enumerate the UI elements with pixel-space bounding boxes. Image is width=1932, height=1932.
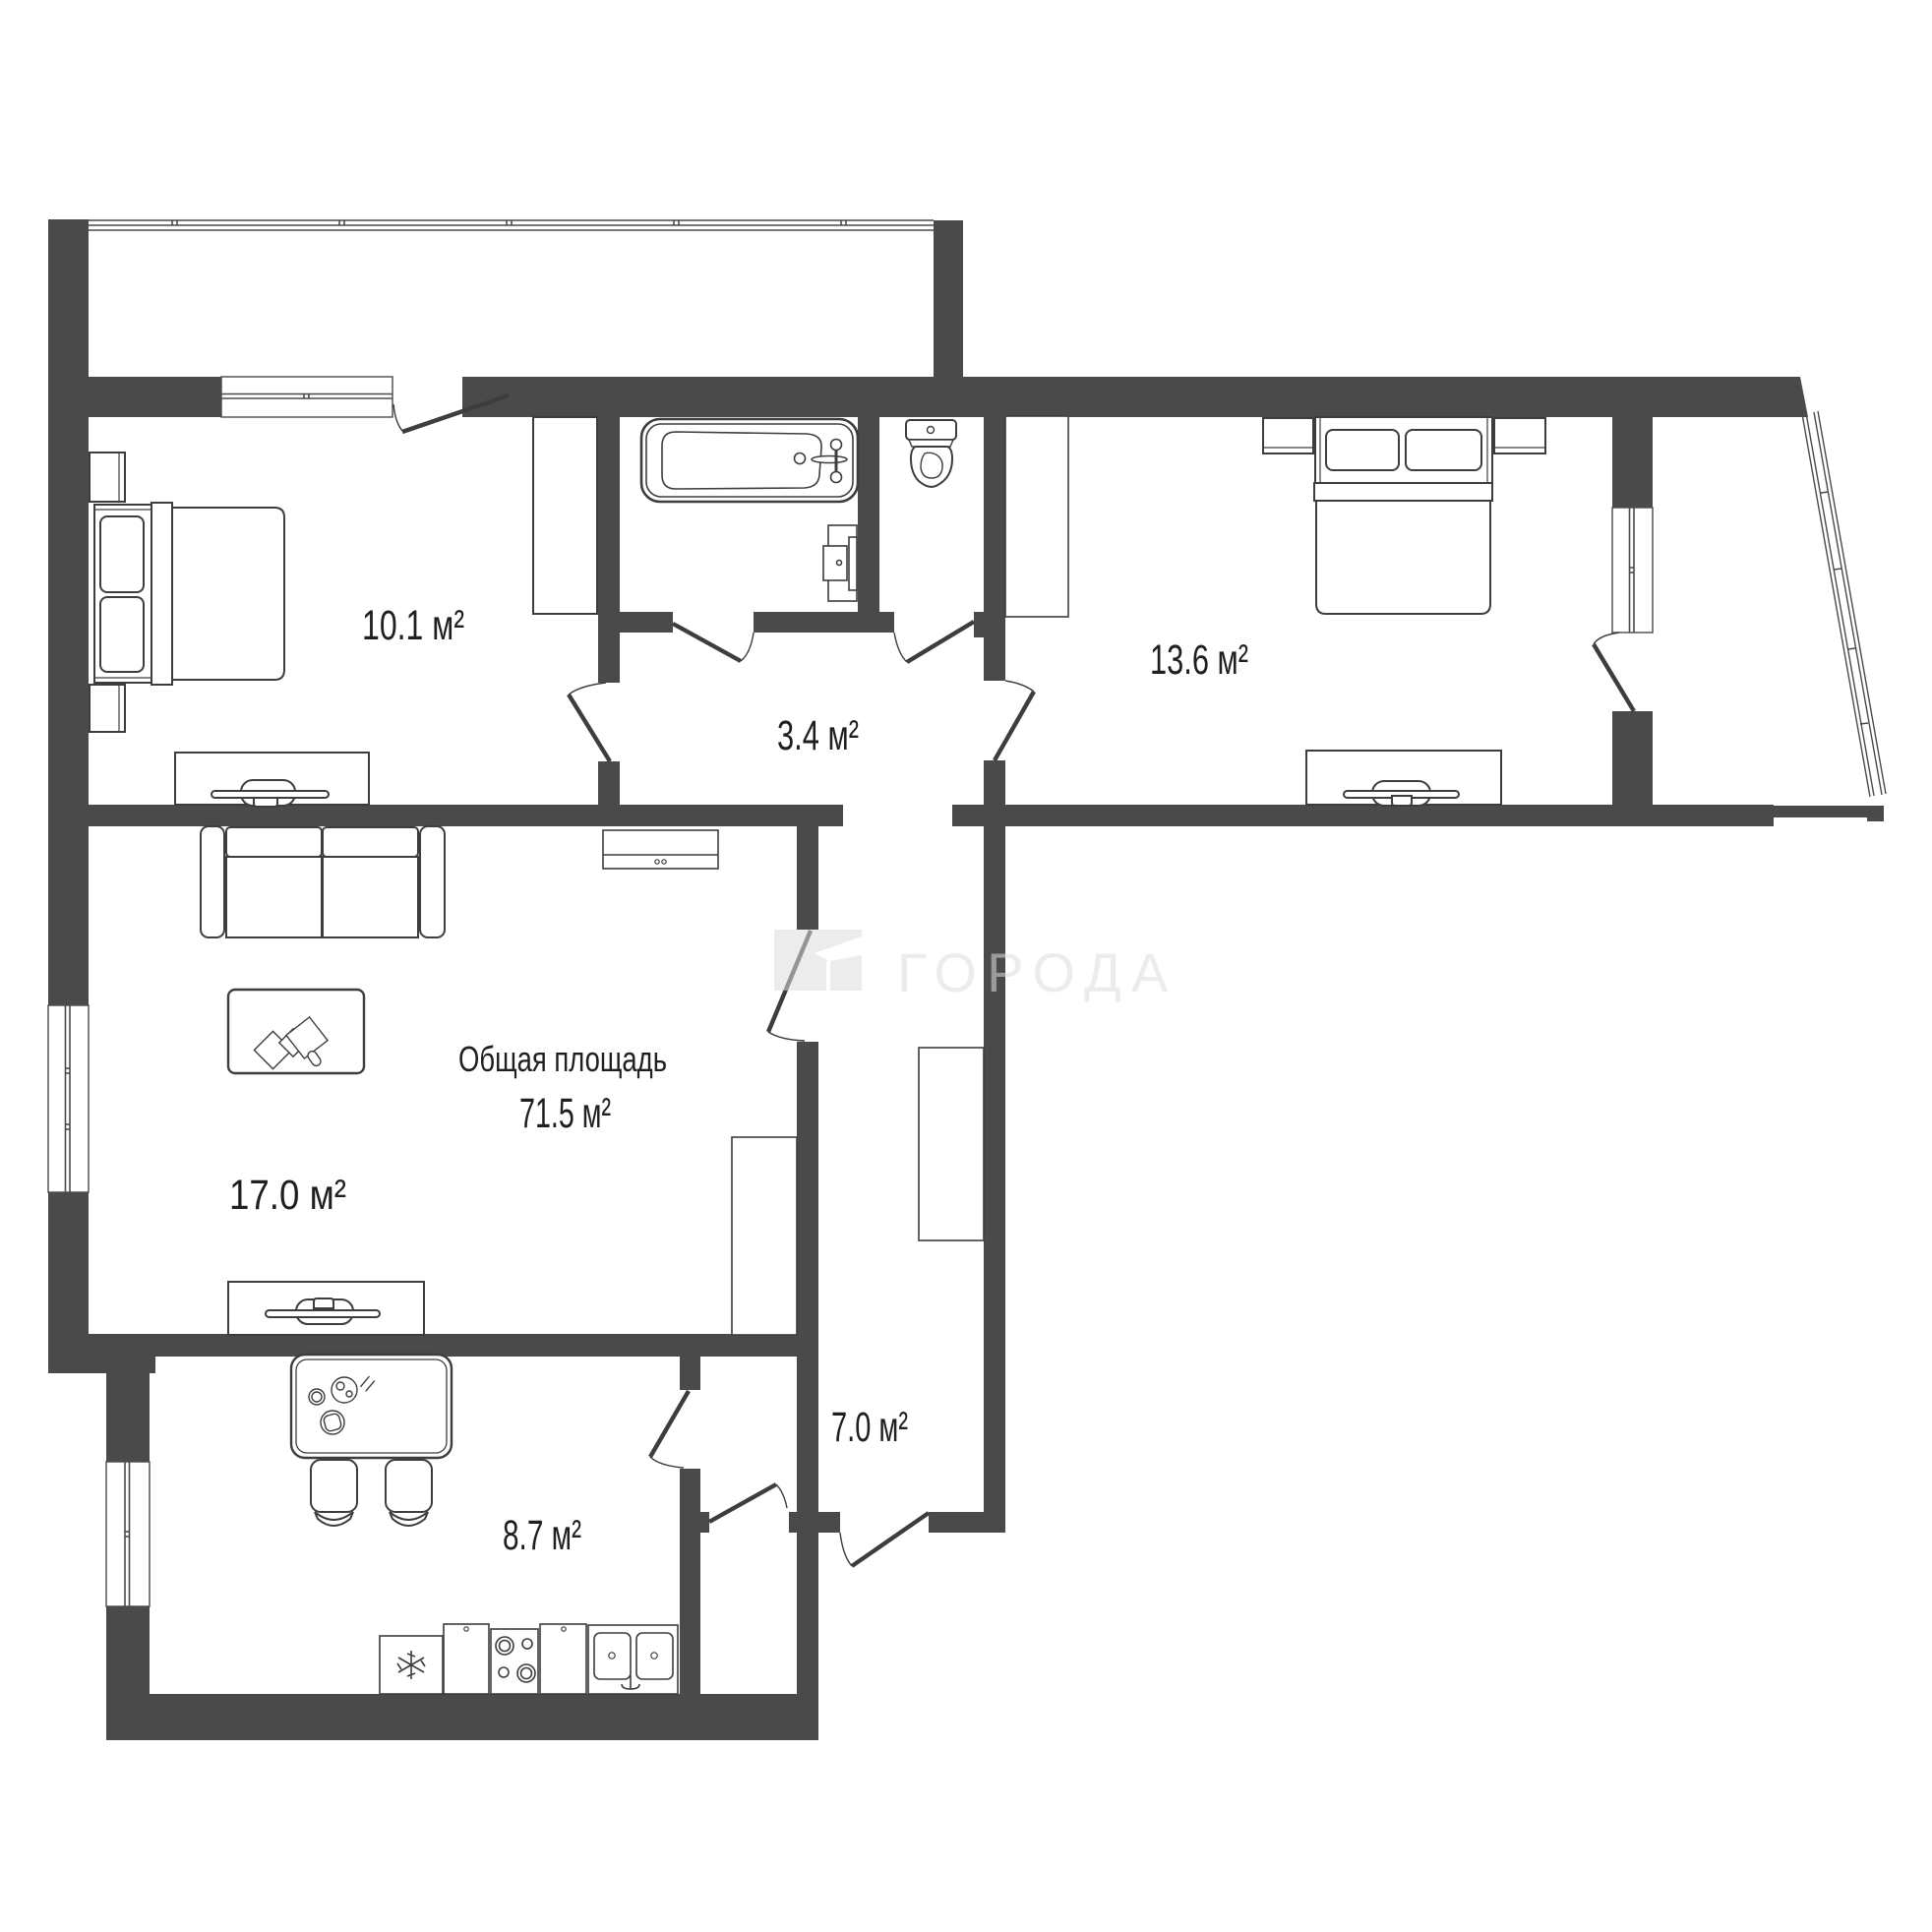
svg-text:17.0 м²: 17.0 м² [229,1172,346,1219]
svg-text:Общая площадь: Общая площадь [458,1039,667,1079]
svg-text:10.1 м²: 10.1 м² [362,602,464,649]
svg-text:13.6 м²: 13.6 м² [1150,636,1248,684]
svg-text:ГОРОДА: ГОРОДА [897,941,1178,1003]
svg-text:3.4 м²: 3.4 м² [777,712,859,759]
svg-text:8.7 м²: 8.7 м² [503,1512,581,1559]
svg-text:7.0 м²: 7.0 м² [831,1404,908,1451]
svg-text:71.5 м²: 71.5 м² [519,1090,611,1137]
